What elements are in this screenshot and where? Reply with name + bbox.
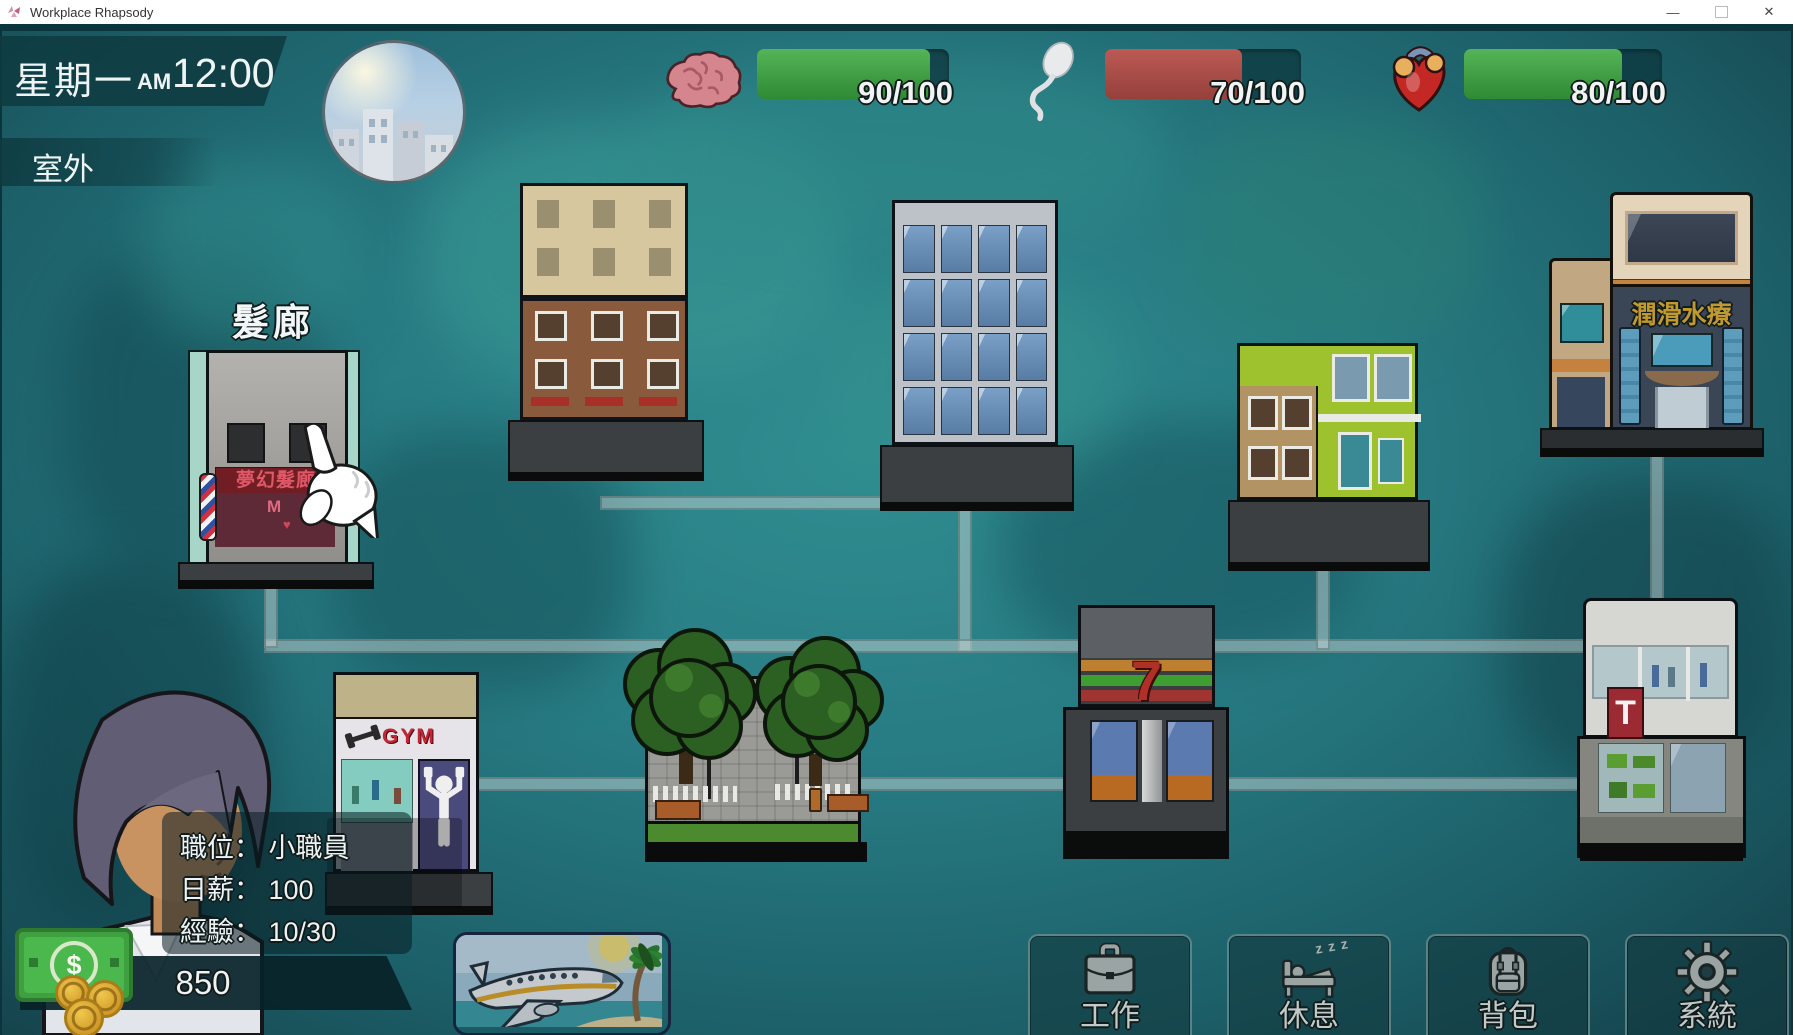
player-exp-row: 經驗： 10/30 bbox=[180, 910, 336, 949]
storefront-letter: M bbox=[267, 497, 281, 517]
salary-value: 100 bbox=[269, 875, 314, 905]
title-bar: Workplace Rhapsody — ✕ bbox=[0, 0, 1793, 24]
maximize-button[interactable] bbox=[1697, 0, 1745, 24]
time-label: 12:00 bbox=[172, 50, 275, 97]
building-green-house[interactable] bbox=[1237, 343, 1418, 573]
tree bbox=[739, 630, 899, 804]
city-skyline-icon bbox=[325, 91, 463, 181]
rest-button[interactable]: z z z 休息 bbox=[1227, 934, 1391, 1035]
stat-bar-heart: 80/100 bbox=[1464, 49, 1662, 99]
rest-label: 休息 bbox=[1229, 991, 1389, 1035]
close-button[interactable]: ✕ bbox=[1745, 0, 1793, 24]
location-banner: 室外 bbox=[0, 138, 218, 186]
position-label: 職位： bbox=[180, 833, 261, 863]
road-segment bbox=[1316, 566, 1330, 650]
toy-store-sign: T bbox=[1607, 687, 1644, 739]
stat-bar-brain: 90/100 bbox=[757, 49, 949, 99]
road-segment bbox=[264, 639, 1664, 653]
sperm-icon bbox=[1012, 40, 1088, 122]
work-label: 工作 bbox=[1030, 991, 1190, 1035]
stat-value: 80/100 bbox=[1571, 75, 1666, 111]
building-toy-store[interactable]: T bbox=[1577, 598, 1746, 858]
position-value: 小職員 bbox=[269, 833, 350, 863]
barber-pole bbox=[199, 473, 217, 541]
window-title: Workplace Rhapsody bbox=[30, 5, 153, 20]
day-time-banner: 星期一 AM 12:00 bbox=[0, 36, 287, 106]
work-button[interactable]: 工作 bbox=[1028, 934, 1192, 1035]
airplane-beach-icon bbox=[456, 935, 662, 1027]
building-apartment[interactable] bbox=[520, 183, 688, 483]
stat-bar-sperm: 70/100 bbox=[1105, 49, 1301, 99]
game-window: Workplace Rhapsody — ✕ 夢幻髮廊 bbox=[0, 0, 1793, 1035]
system-label: 系統 bbox=[1627, 991, 1787, 1035]
salary-label: 日薪： bbox=[180, 875, 261, 905]
app-icon bbox=[6, 4, 22, 20]
building-office[interactable] bbox=[892, 200, 1058, 520]
player-position-row: 職位： 小職員 bbox=[180, 826, 350, 865]
location-label: 室外 bbox=[32, 144, 94, 189]
building-store[interactable]: 7 bbox=[1063, 605, 1229, 859]
meridiem-label: AM bbox=[137, 69, 171, 95]
minimize-button[interactable]: — bbox=[1649, 0, 1697, 24]
hand-cursor-icon bbox=[282, 424, 388, 538]
hair-salon-label: 髮廊 bbox=[232, 292, 314, 346]
spa-sign: 潤滑水療 bbox=[1613, 295, 1750, 331]
stat-value: 90/100 bbox=[858, 75, 953, 111]
exp-value: 10/30 bbox=[269, 917, 337, 947]
dumbbell-icon bbox=[344, 723, 382, 751]
weather-indicator bbox=[322, 40, 466, 184]
maximize-icon bbox=[1715, 6, 1728, 18]
exp-label: 經驗： bbox=[180, 917, 261, 947]
heart-icon bbox=[1383, 44, 1455, 114]
day-label: 星期一 bbox=[14, 50, 134, 105]
player-salary-row: 日薪： 100 bbox=[180, 868, 314, 907]
system-button[interactable]: 系統 bbox=[1625, 934, 1789, 1035]
building-spa[interactable]: 潤滑水療 bbox=[1540, 189, 1760, 455]
store-sign: 7 bbox=[1081, 648, 1212, 713]
stat-value: 70/100 bbox=[1210, 75, 1305, 111]
money-value: 850 bbox=[175, 964, 256, 1002]
backpack-label: 背包 bbox=[1428, 991, 1588, 1035]
brain-icon bbox=[658, 48, 746, 112]
window-border bbox=[0, 24, 1793, 31]
park[interactable] bbox=[623, 636, 885, 862]
travel-button[interactable] bbox=[453, 932, 671, 1035]
coin-icon bbox=[64, 998, 104, 1035]
backpack-button[interactable]: 背包 bbox=[1426, 934, 1590, 1035]
gym-sign: GYM bbox=[382, 725, 436, 749]
